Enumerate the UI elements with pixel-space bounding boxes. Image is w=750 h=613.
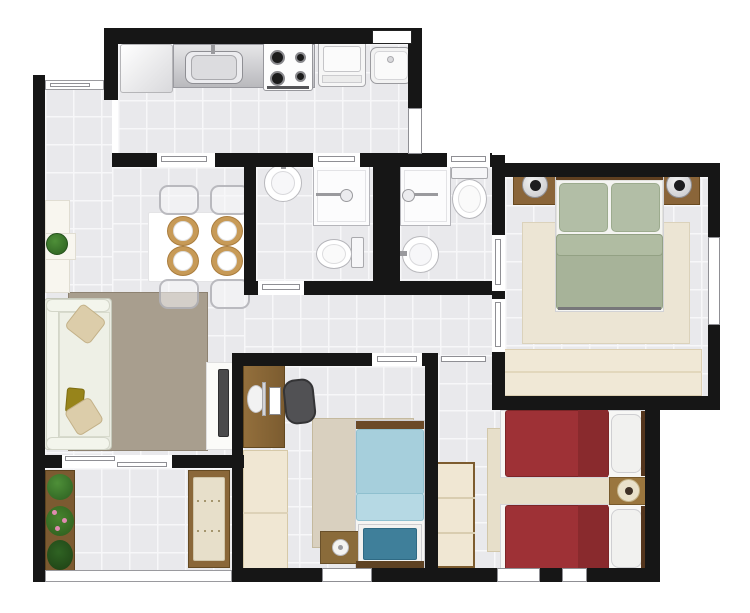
bedroom-2-wardrobe-seam: [243, 512, 288, 514]
bench-seam-1: [197, 500, 221, 502]
stove-burner-3: [270, 71, 285, 86]
bath-1-toilet-seat: [322, 244, 346, 264]
single-bed-duvet-blue: [356, 429, 424, 495]
bath-2-shower-arm: [414, 193, 438, 196]
balcony-door-leaf-1: [65, 456, 115, 461]
bath-2-sink-bowl: [409, 243, 432, 266]
computer-keyboard: [269, 387, 281, 415]
sofa-backrest: [46, 300, 59, 448]
single-bed-foot-cushion: [363, 528, 417, 560]
ensuite-door-leaf: [495, 239, 501, 285]
laundry-tub-drain: [387, 56, 394, 63]
potted-plant: [46, 233, 68, 255]
twin-bed-b-throw: [578, 505, 608, 572]
bath-2-toilet-seat: [458, 185, 481, 213]
floor-plan: [0, 0, 750, 613]
master-bed-foot-rail: [558, 307, 661, 310]
planter-flower-3: [55, 526, 60, 531]
bath-1-door-leaf: [262, 284, 300, 290]
window-bedroom-2: [322, 568, 372, 582]
wall-outer-left: [33, 75, 45, 582]
planter-foliage-1: [47, 474, 73, 500]
bedroom-2-door-leaf: [377, 356, 417, 362]
bedroom-3-wardrobe-seam-2: [435, 532, 475, 534]
master-door-leaf: [495, 302, 501, 347]
bath-1-sink-bowl: [271, 171, 295, 195]
floor-corridor-bedroom-3: [438, 355, 492, 410]
computer-monitor-screen: [262, 382, 266, 416]
stove: [263, 42, 313, 91]
stove-burner-1: [270, 50, 285, 65]
sofa-armrest-bottom: [46, 437, 110, 450]
entry-door-leaf: [50, 83, 90, 87]
kitchen-sink-basin: [191, 55, 237, 80]
master-bed-fold: [556, 234, 663, 256]
bedroom-3-lamp-center: [625, 487, 633, 495]
window-kitchen-right: [408, 108, 422, 154]
bench-seam-2: [197, 530, 221, 532]
single-bed-fold: [356, 493, 424, 521]
plate-3: [173, 251, 193, 271]
bath-1-vent-leaf: [318, 156, 355, 162]
wall-bath-divider: [373, 155, 400, 295]
washing-machine-panel: [322, 75, 362, 83]
wall-master-bottom: [492, 396, 720, 410]
planter-flower-1: [52, 510, 57, 515]
single-bed-headboard: [356, 421, 424, 429]
window-bedroom-3-b: [562, 568, 587, 582]
duct-shaft-marker: [372, 30, 412, 44]
wall-master-top: [505, 163, 720, 177]
plate-2: [217, 221, 237, 241]
twin-bed-a-pillow: [611, 414, 642, 473]
master-wardrobe-seam: [500, 371, 702, 373]
bath-2-vent-leaf: [451, 156, 486, 162]
fridge: [120, 44, 173, 93]
bath-2-toilet-tank: [451, 167, 488, 179]
bedroom-3-wardrobe: [435, 462, 475, 568]
window-master-east: [708, 237, 720, 325]
dining-chair-3: [159, 279, 199, 309]
plate-4: [217, 251, 237, 271]
planter-foliage-3: [47, 540, 73, 570]
kitchen-faucet: [211, 45, 215, 54]
master-lamp-right-center: [674, 180, 685, 191]
planter-foliage-2: [46, 506, 74, 536]
window-bedroom-3-a: [497, 568, 540, 582]
wall-bottom: [232, 568, 660, 582]
wall-bedroom-2-east: [425, 353, 438, 582]
wall-kitchen-right: [408, 44, 422, 108]
master-pillow-right: [611, 183, 660, 232]
wall-bath-1-west: [244, 155, 256, 295]
plate-1: [173, 221, 193, 241]
wall-bedroom-3-east: [645, 410, 660, 582]
twin-bed-a-throw: [578, 410, 608, 477]
floor-hallway: [244, 290, 492, 355]
bath-2-shower-head: [402, 189, 415, 202]
washing-machine-lid: [323, 46, 361, 72]
master-pillow-left: [559, 183, 608, 232]
bedroom-3-door-leaf: [441, 356, 486, 362]
stove-burner-4: [295, 71, 306, 82]
stove-knobs: [267, 86, 309, 89]
master-lamp-left-center: [530, 180, 541, 191]
bedroom-2-lamp-center: [338, 545, 343, 550]
bench-cushion: [193, 477, 225, 561]
balcony-railing: [45, 570, 232, 582]
bath-1-toilet-tank: [351, 237, 364, 268]
wall-kitchen-left: [104, 44, 118, 100]
bedroom-3-wardrobe-seam-1: [435, 497, 475, 499]
bath-1-shower-arm: [316, 193, 342, 196]
tv: [218, 369, 229, 437]
stove-burner-2: [295, 52, 306, 63]
planter-flower-2: [62, 518, 67, 523]
bath-1-shower-head: [340, 189, 353, 202]
dining-chair-1: [159, 185, 199, 215]
office-chair: [282, 378, 318, 426]
twin-bed-b-pillow: [611, 509, 642, 568]
balcony-door-leaf-2: [117, 462, 167, 467]
kitchen-door-leaf: [161, 156, 207, 162]
